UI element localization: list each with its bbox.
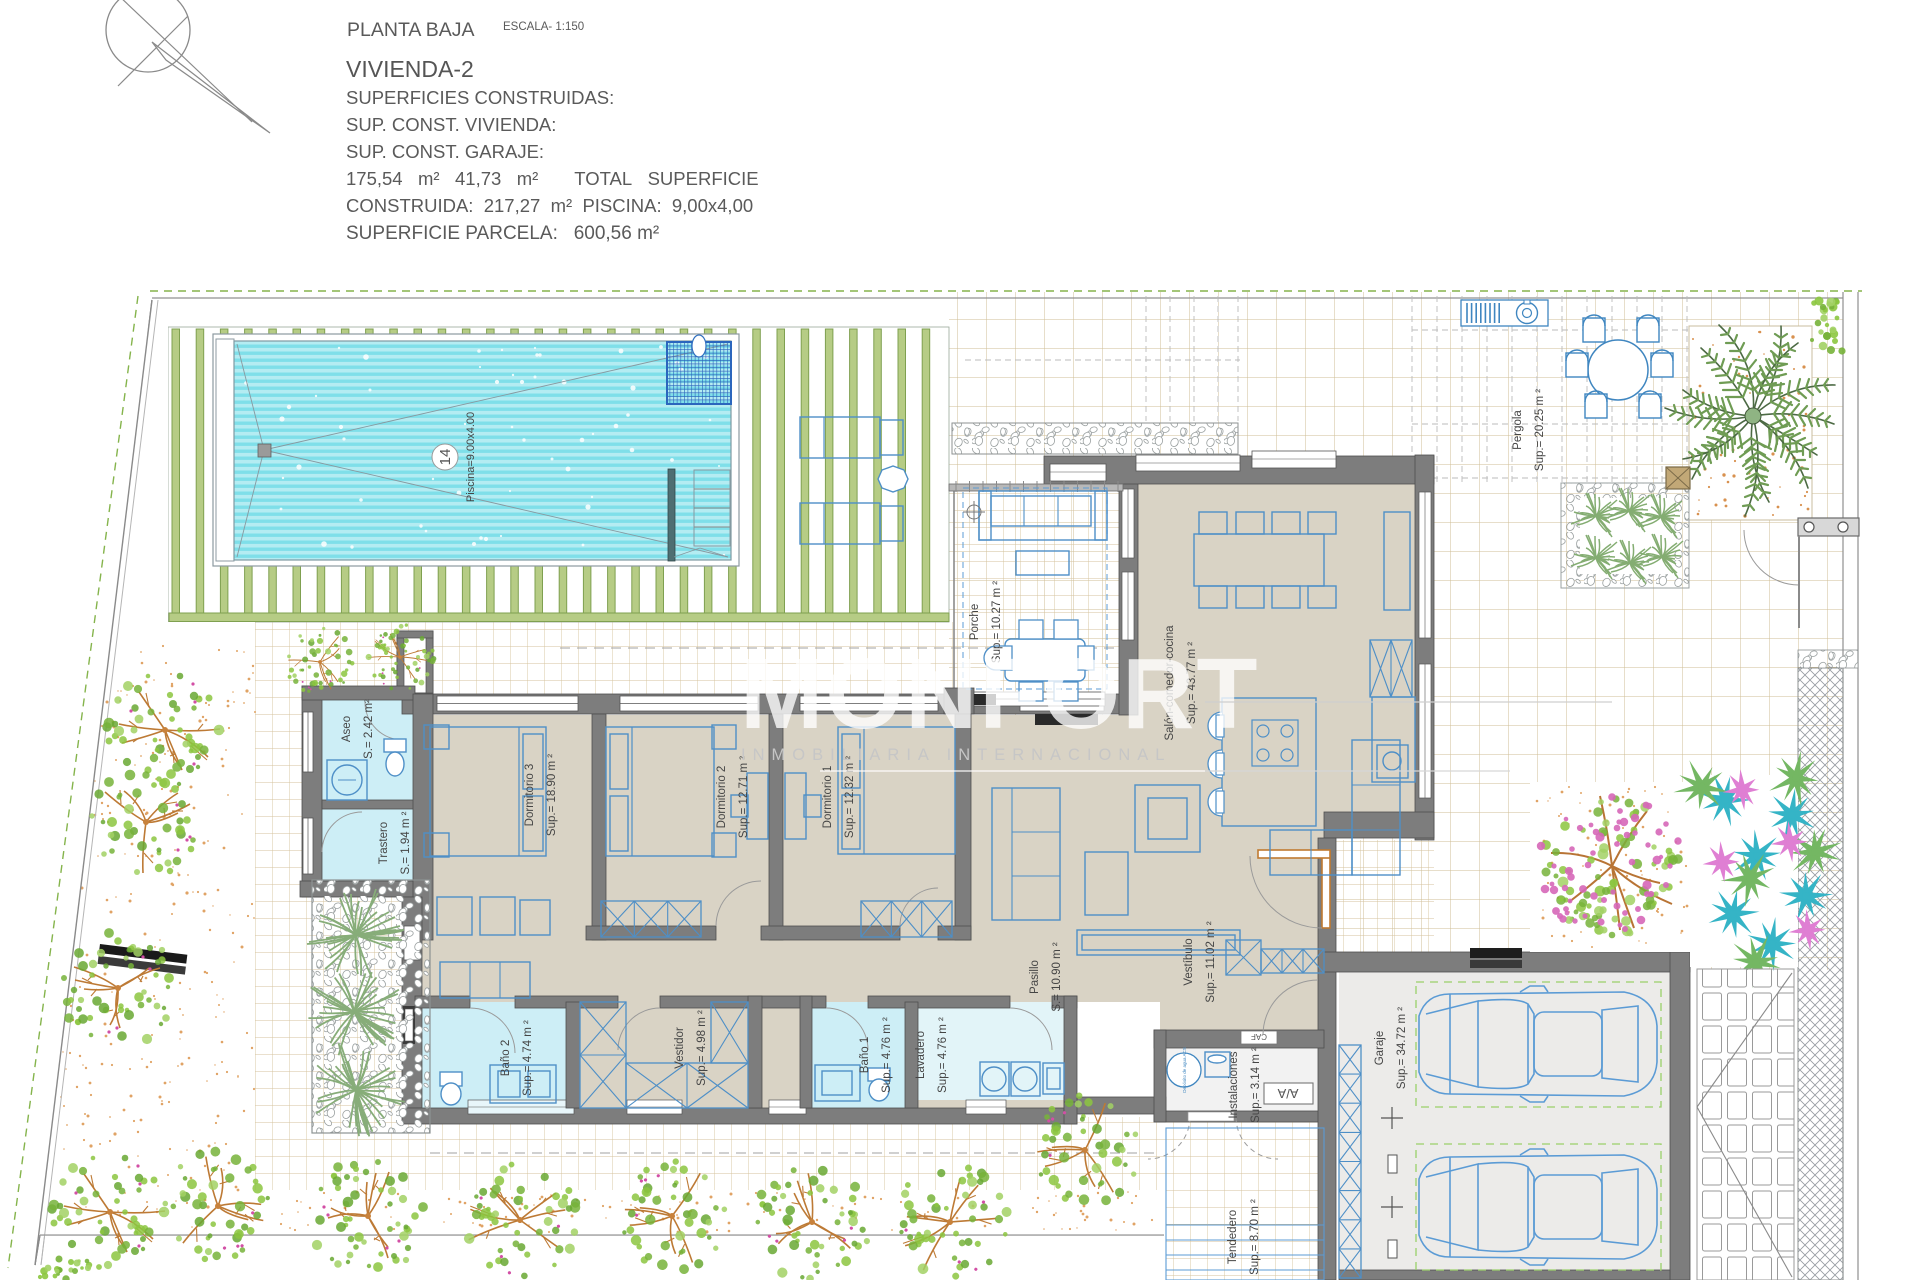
svg-text:SUP. CONST. VIVIENDA:: SUP. CONST. VIVIENDA: xyxy=(346,114,556,135)
svg-text:S.= 2.42 m²: S.= 2.42 m² xyxy=(363,699,375,759)
svg-text:Dormitorio 1: Dormitorio 1 xyxy=(822,766,834,829)
svg-text:Sup.= 8.70 m ²: Sup.= 8.70 m ² xyxy=(1249,1199,1261,1275)
svg-text:Porche: Porche xyxy=(969,604,981,640)
svg-text:S.= 1.94 m ²: S.= 1.94 m ² xyxy=(400,811,412,874)
svg-text:Vestidor: Vestidor xyxy=(674,1027,686,1069)
svg-text:A/A: A/A xyxy=(1277,1086,1298,1101)
svg-text:CONSTRUIDA: 217,27 m² PISCI: CONSTRUIDA: 217,27 m² PISCINA: 9,00x4,00 xyxy=(346,195,753,216)
svg-text:Sup.= 4.76 m ²: Sup.= 4.76 m ² xyxy=(937,1017,949,1093)
svg-text:Sup.= 20.25 m ²: Sup.= 20.25 m ² xyxy=(1534,389,1546,471)
svg-text:Baño 1: Baño 1 xyxy=(859,1037,871,1073)
svg-text:Lavadero: Lavadero xyxy=(915,1031,927,1079)
svg-text:Sup.= 4.76 m ²: Sup.= 4.76 m ² xyxy=(881,1017,893,1093)
svg-text:PLANTA BAJA: PLANTA BAJA xyxy=(347,19,475,41)
svg-text:CAF: CAF xyxy=(1251,1032,1267,1041)
svg-text:Dormitorio 2: Dormitorio 2 xyxy=(716,766,728,829)
svg-text:175,54 m² 41,73 m²: 175,54 m² 41,73 m² TOTAL SUPERFICIE xyxy=(346,168,759,189)
svg-text:Dormitorio 3: Dormitorio 3 xyxy=(524,764,536,827)
svg-text:Sup.= 34.72 m ²: Sup.= 34.72 m ² xyxy=(1396,1007,1408,1089)
svg-text:Sup.= 18.90 m ²: Sup.= 18.90 m ² xyxy=(546,754,558,836)
svg-text:INMOBILIARIA INTERNACIONAL: INMOBILIARIA INTERNACIONAL xyxy=(741,746,1171,764)
svg-text:Piscina=9.00x4.00: Piscina=9.00x4.00 xyxy=(465,412,477,502)
svg-text:Tendedero: Tendedero xyxy=(1227,1210,1239,1264)
svg-text:VIVIENDA-2: VIVIENDA-2 xyxy=(346,56,474,82)
svg-text:Sup.= 12.32 m ²: Sup.= 12.32 m ² xyxy=(844,756,856,838)
svg-text:Sup.= 11.02 m ²: Sup.= 11.02 m ² xyxy=(1205,921,1217,1002)
svg-text:Trastero: Trastero xyxy=(378,822,390,864)
svg-text:Pasillo: Pasillo xyxy=(1029,960,1041,994)
svg-text:SUPERFICIES CONSTRUIDAS:: SUPERFICIES CONSTRUIDAS: xyxy=(346,87,614,108)
svg-text:Aseo: Aseo xyxy=(341,716,353,742)
svg-text:Instalaciones: Instalaciones xyxy=(1228,1051,1240,1118)
svg-text:Baño 2: Baño 2 xyxy=(500,1040,512,1076)
svg-text:MONFORT: MONFORT xyxy=(740,638,1259,750)
svg-text:Sup.= 3.14 m ²: Sup.= 3.14 m ² xyxy=(1250,1047,1262,1123)
svg-text:ESCALA- 1:150: ESCALA- 1:150 xyxy=(503,21,584,33)
svg-text:Garaje: Garaje xyxy=(1374,1031,1386,1066)
svg-text:Pergola: Pergola xyxy=(1512,410,1524,450)
svg-text:Sup.= 12.71 m ²: Sup.= 12.71 m ² xyxy=(738,756,750,838)
svg-text:Vestíbulo: Vestíbulo xyxy=(1183,938,1195,985)
svg-text:SUP. CONST. GARAJE:: SUP. CONST. GARAJE: xyxy=(346,141,544,162)
svg-text:SUPERFICIE PARCELA: 600,56 m: SUPERFICIE PARCELA: 600,56 m² xyxy=(346,223,659,244)
svg-text:Sup.= 4.74 m ²: Sup.= 4.74 m ² xyxy=(522,1020,534,1096)
svg-text:14: 14 xyxy=(437,449,454,466)
svg-text:Sup.= 4.98 m ²: Sup.= 4.98 m ² xyxy=(696,1010,708,1086)
svg-text:Depósito de agua ACS: Depósito de agua ACS xyxy=(1182,1047,1187,1093)
svg-text:S.= 10.90 m ²: S.= 10.90 m ² xyxy=(1051,942,1063,1012)
